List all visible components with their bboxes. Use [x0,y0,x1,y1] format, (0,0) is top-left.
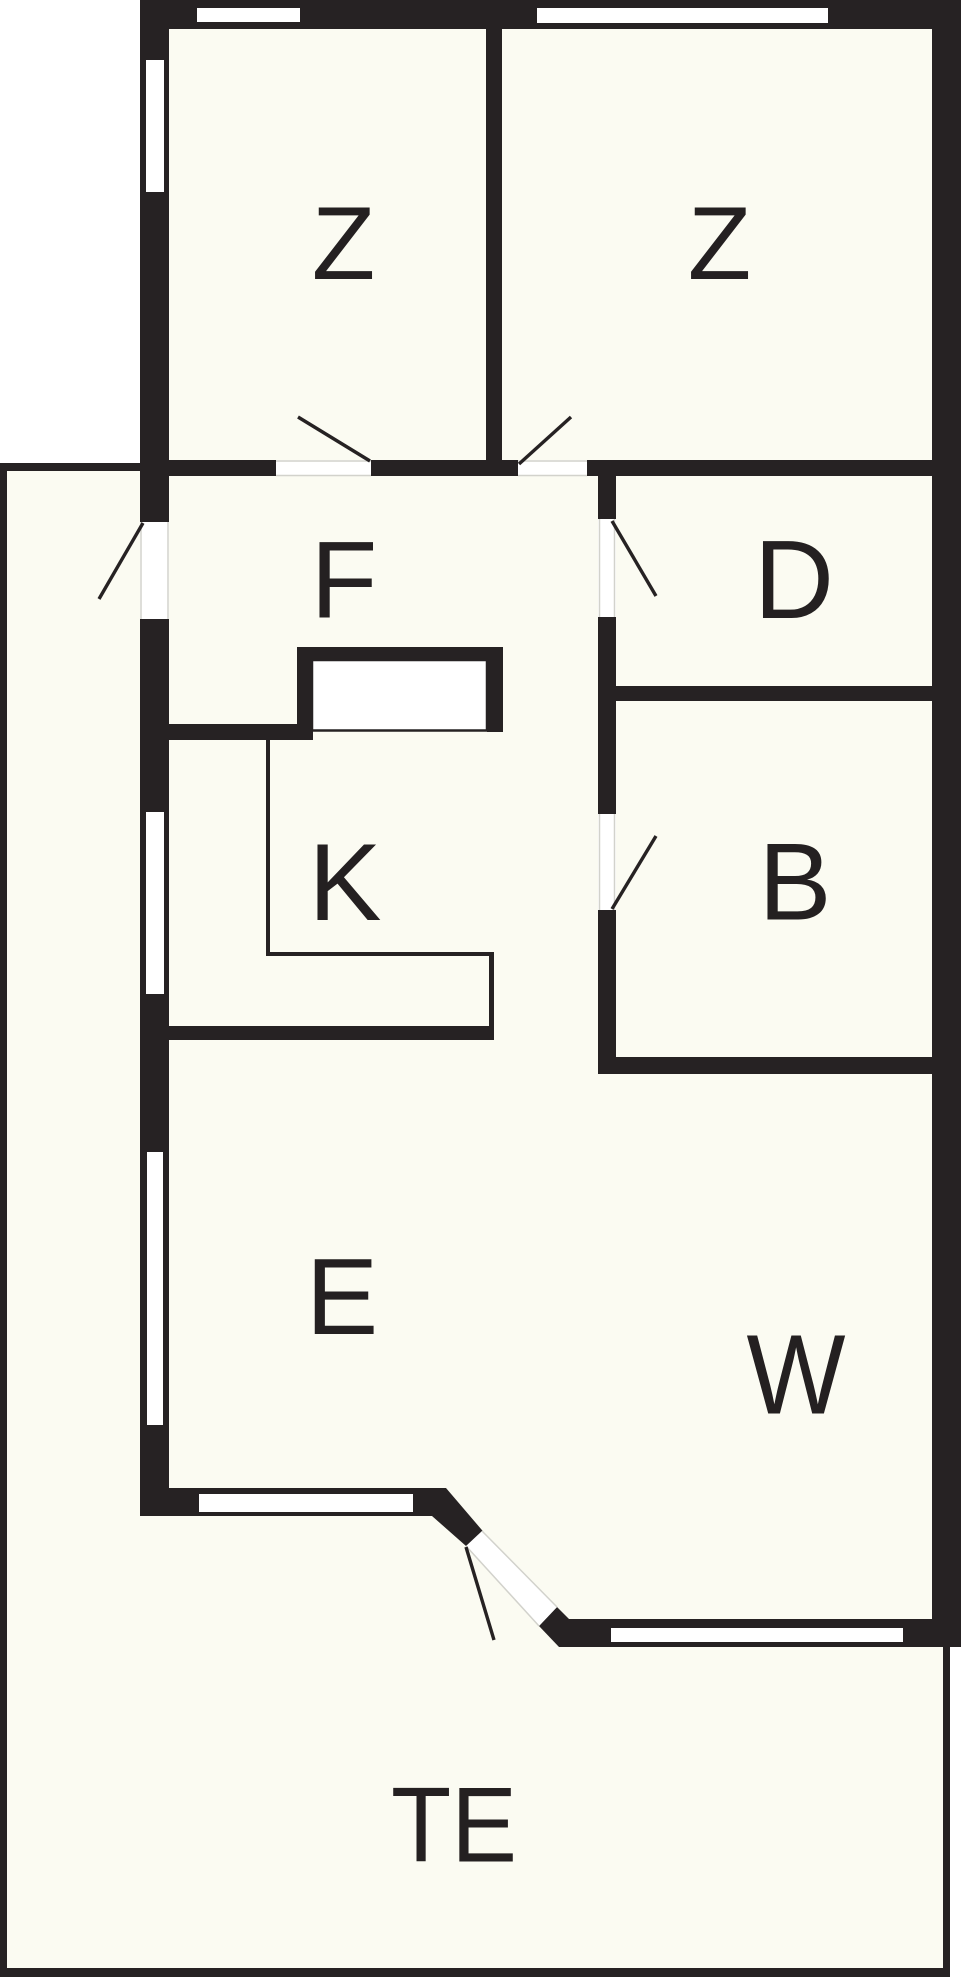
svg-text:Z: Z [312,186,376,302]
svg-text:B: B [758,822,831,944]
svg-text:Z: Z [688,186,752,302]
svg-text:E: E [306,1236,378,1357]
svg-text:F: F [311,520,378,642]
svg-text:D: D [754,518,834,642]
svg-text:TE: TE [391,1765,517,1885]
svg-text:W: W [747,1312,846,1438]
svg-text:K: K [308,822,381,944]
